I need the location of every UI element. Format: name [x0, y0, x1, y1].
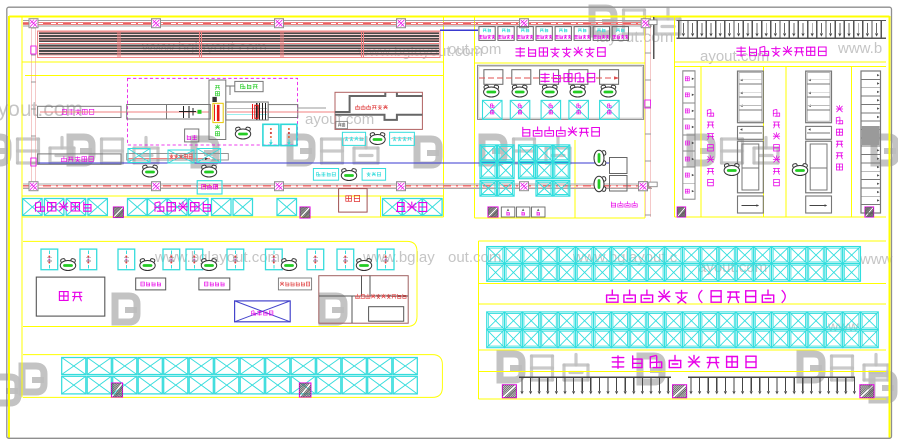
svg-text:www.bglay: www.bglay — [362, 249, 435, 266]
svg-text:www: www — [859, 251, 893, 268]
svg-text:www.b: www.b — [837, 40, 882, 57]
